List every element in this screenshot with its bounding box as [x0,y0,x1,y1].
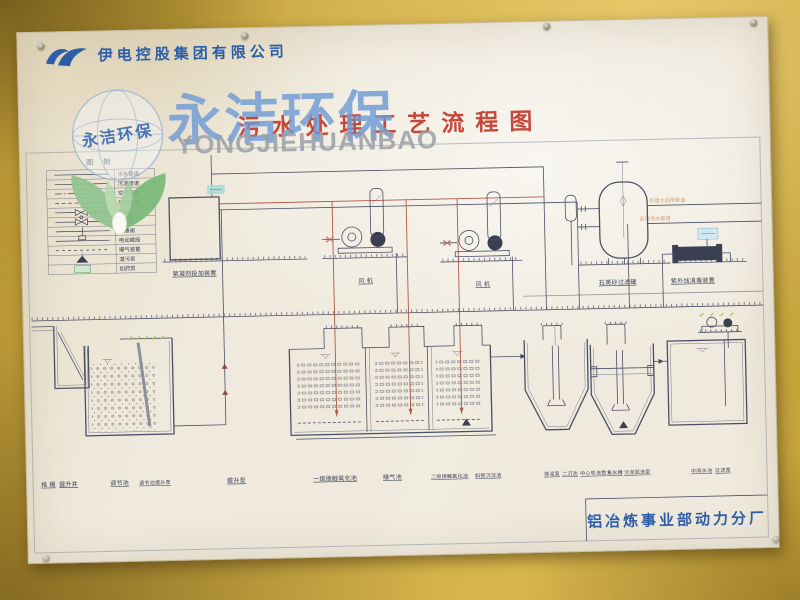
screw [772,536,779,543]
dosing-device: 絮凝剂投加装置 [169,185,227,278]
department-title: 铝冶炼事业部动力分厂 [587,509,767,531]
clarifier-2 [590,322,655,435]
equipment-label: 絮凝剂投加装置 [173,269,217,278]
blower-1: 风 机 [337,188,393,285]
legend-label: 潜污泵 [119,255,136,263]
intermediate-tank [667,312,747,425]
screw [43,555,50,562]
equipment-label: 风 机 [358,277,373,285]
tank-label: 格 栅 [41,481,56,489]
regulating-tank [84,336,174,436]
legend-label: 污泥管道 [118,179,140,187]
company-name: 伊电控股集团有限公司 [98,40,288,65]
legend-label: 空气管道 [118,188,140,196]
equipment-label: 紫外线消毒装置 [671,276,715,285]
company-logo [44,42,91,69]
tank-label: 曝气池 [383,473,402,481]
legend-label: 闸阀 [118,208,129,216]
watermark-seal-text: 永洁环保 [80,120,155,150]
screw [543,23,550,30]
tank-label: 一级接触氧化池 [313,474,357,483]
screw [750,19,757,26]
legend-label: 电动蝶阀 [119,236,141,244]
tank-label: 提升井 [59,480,78,488]
legend-label: 曝气装置 [119,245,141,253]
tank-label: 污泥回流泵 [624,469,651,477]
pipe-note: 反冲洗水管道 [639,214,670,223]
poster-board: 伊电控股集团有限公司 污水处理工艺流程图 图 例 [16,16,779,564]
blower-2: 风 机 [454,192,510,289]
tank-label: 过滤泵 [715,467,731,474]
company-header: 伊电控股集团有限公司 [43,35,288,70]
tank-label: 二级接触氧化池 [431,473,468,481]
oxidation-tanks [289,324,492,436]
equipment-label: 石英砂过滤罐 [599,278,637,287]
tank-label: 调节池 [110,479,129,487]
legend-label: 加药泵 [119,264,136,272]
tank-label: 集水槽 [607,469,623,476]
equipment-label: 风 机 [476,280,491,288]
tank-label: 提升泵 [227,476,246,484]
tank-label: 中间水池 [691,467,712,474]
legend-label: 止回阀 [118,217,134,225]
legend-table: 图 例 污水管道 污泥管道 空气管道 [46,156,157,274]
legend-label: 加药管道 [118,198,140,206]
uv-disinfection-unit: 紫外线消毒装置 [662,228,732,307]
tank-label: 中心导流筒 [580,469,607,477]
sand-filter: 石英砂过滤罐 [564,162,649,288]
tank-label: 排泥泵 [544,471,560,478]
screw [38,43,45,50]
tank-label: 斜管沉淀池 [475,472,502,480]
tank-label: 调节池提升泵 [139,479,171,487]
legend-label: 三通阀 [119,226,135,234]
sludge-pump-icon [619,421,628,428]
tank-labels: 格 栅 提升井 调节池 调节池提升泵 提升泵 一级接触氧化池 曝气池 二级接触氧… [41,466,731,489]
legend-title: 图 例 [86,157,114,167]
process-diagram: 图 例 污水管道 污泥管道 空气管道 [20,135,777,561]
legend-label: 污水管道 [117,170,139,178]
photo-of-flowchart-poster: { "company": { "name": "伊电控股集团有限公司" }, "… [0,0,800,600]
page-title: 污水处理工艺流程图 [237,102,544,143]
pipe-note: 处理水回用管道 [649,196,685,205]
clarifier-1 [524,323,589,430]
tank-label: 二沉池 [562,470,578,477]
